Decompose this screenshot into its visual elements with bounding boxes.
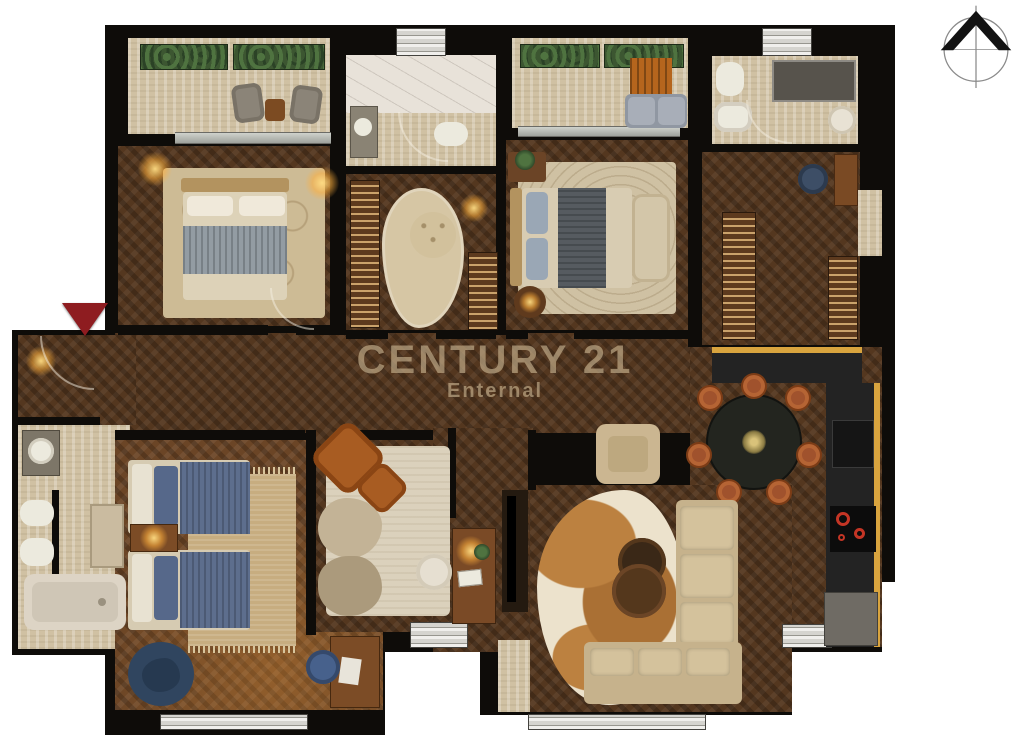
sofa-cushion	[680, 602, 734, 644]
wall-closet-south-a	[346, 330, 388, 339]
balcony-1-slider	[175, 132, 331, 144]
bed-pillow	[132, 464, 152, 528]
window-bathroom-2	[762, 28, 812, 56]
kitchen-counter-top	[712, 347, 862, 383]
wall-corridor-living	[528, 430, 536, 490]
lamp-glow	[138, 152, 172, 186]
bed-pillow-blue	[154, 466, 178, 526]
rug-fringe	[188, 646, 296, 653]
bathroom-2-toilet	[716, 62, 744, 96]
window-bedroom-3	[160, 714, 308, 730]
kitchen-end-cabinet	[824, 592, 878, 646]
wall-bed2-south-b	[574, 330, 690, 339]
closet-wardrobe-left	[350, 180, 380, 328]
wall-bidet-nook	[52, 490, 59, 575]
wing-toilet	[20, 538, 54, 566]
potted-plant	[515, 150, 535, 170]
sofa-cushion	[680, 506, 734, 550]
balcony-side-table	[265, 99, 285, 121]
planter-box	[520, 44, 600, 68]
wall-lamp-glow	[460, 194, 488, 222]
bedroom-2-bench	[632, 194, 670, 282]
wall-entry-wingbath	[18, 417, 100, 425]
wall-hall-south-a	[115, 430, 305, 440]
sofa-cushion	[638, 648, 682, 676]
hall-shelving-left	[722, 212, 756, 340]
sofa-cushion	[590, 648, 634, 676]
wing-sink	[28, 438, 54, 464]
bed-pillow	[526, 238, 548, 280]
dining-chair	[697, 385, 723, 411]
fridge	[832, 420, 874, 468]
wall-master-south-a	[118, 325, 268, 335]
desk-papers	[338, 657, 361, 686]
closet-pouf	[410, 212, 456, 258]
bed-pillow	[526, 192, 548, 234]
bathroom-2-sink	[828, 106, 856, 134]
hall-shelving-right	[828, 256, 858, 340]
dining-chair	[686, 442, 712, 468]
balcony-armchair	[231, 82, 266, 124]
master-headboard	[181, 178, 289, 192]
wall-bath1-closet	[346, 166, 496, 174]
bathtub-drain	[98, 598, 106, 606]
dining-chair	[785, 385, 811, 411]
shower-tray	[90, 504, 124, 568]
candle-glow	[519, 291, 541, 313]
window-living	[528, 714, 706, 730]
bed-pillow	[239, 196, 285, 216]
bedroom-2-headboard	[510, 188, 522, 286]
desk-chair-blue	[306, 650, 340, 684]
sofa-cushion	[686, 648, 730, 676]
wall-bath2-south	[702, 144, 858, 152]
kitchen-entry-floor	[858, 190, 882, 256]
sofa-cushion	[680, 554, 734, 598]
wall-bed2-south-a	[506, 330, 528, 339]
bedroom-2-blanket	[558, 188, 606, 288]
lamp-glow	[305, 166, 339, 200]
twin-blanket-2	[180, 552, 250, 628]
balcony-armchair	[289, 84, 324, 125]
planter-box	[140, 44, 228, 70]
dining-chair	[766, 479, 792, 505]
twin-blanket-1	[180, 462, 250, 534]
balcony-wood-screen	[630, 58, 672, 94]
floor-plan-image: CENTURY 21 Enternal	[0, 0, 1024, 735]
coffee-table	[612, 564, 666, 618]
entrance-arrow-icon	[62, 303, 108, 336]
loveseat-cushion	[658, 97, 685, 125]
table-centerpiece	[742, 430, 766, 454]
closet-wardrobe-right	[468, 252, 498, 330]
window-bathroom-1	[396, 28, 446, 56]
master-blanket	[183, 226, 287, 274]
bed-pillow	[187, 196, 233, 216]
central-hall-floor	[115, 333, 700, 433]
dining-chair	[796, 442, 822, 468]
cooktop-burner	[836, 512, 850, 526]
desk-plant	[474, 544, 490, 560]
cooktop-burner	[854, 528, 865, 539]
tv-screen	[507, 496, 516, 602]
armchair-seat	[608, 436, 648, 472]
bathroom-1-sink	[354, 118, 372, 136]
compass-svg	[933, 4, 1019, 88]
bed-pillow	[132, 554, 152, 622]
loveseat-cushion	[628, 97, 655, 125]
corridor-column	[498, 640, 530, 712]
laptop	[457, 569, 483, 587]
den-side-table	[416, 554, 452, 590]
wall-bed2-hall	[688, 25, 702, 347]
wall-desk	[834, 154, 858, 206]
cooktop	[830, 506, 876, 552]
cooktop-burner	[838, 534, 845, 541]
desk-chair	[798, 164, 828, 194]
bathroom-2-shower	[772, 60, 856, 102]
lamp-glow	[140, 524, 168, 552]
bed-pillow-blue	[154, 556, 178, 620]
bathroom-1-floor	[346, 55, 496, 113]
wall-closet-south-b	[436, 330, 496, 339]
daybed-cushion	[318, 556, 382, 616]
bean-bag-fold	[142, 658, 180, 692]
bidet	[20, 500, 54, 526]
dining-chair	[741, 373, 767, 399]
north-compass-icon	[933, 4, 1019, 88]
planter-box	[233, 44, 325, 70]
window-notch	[410, 622, 468, 648]
